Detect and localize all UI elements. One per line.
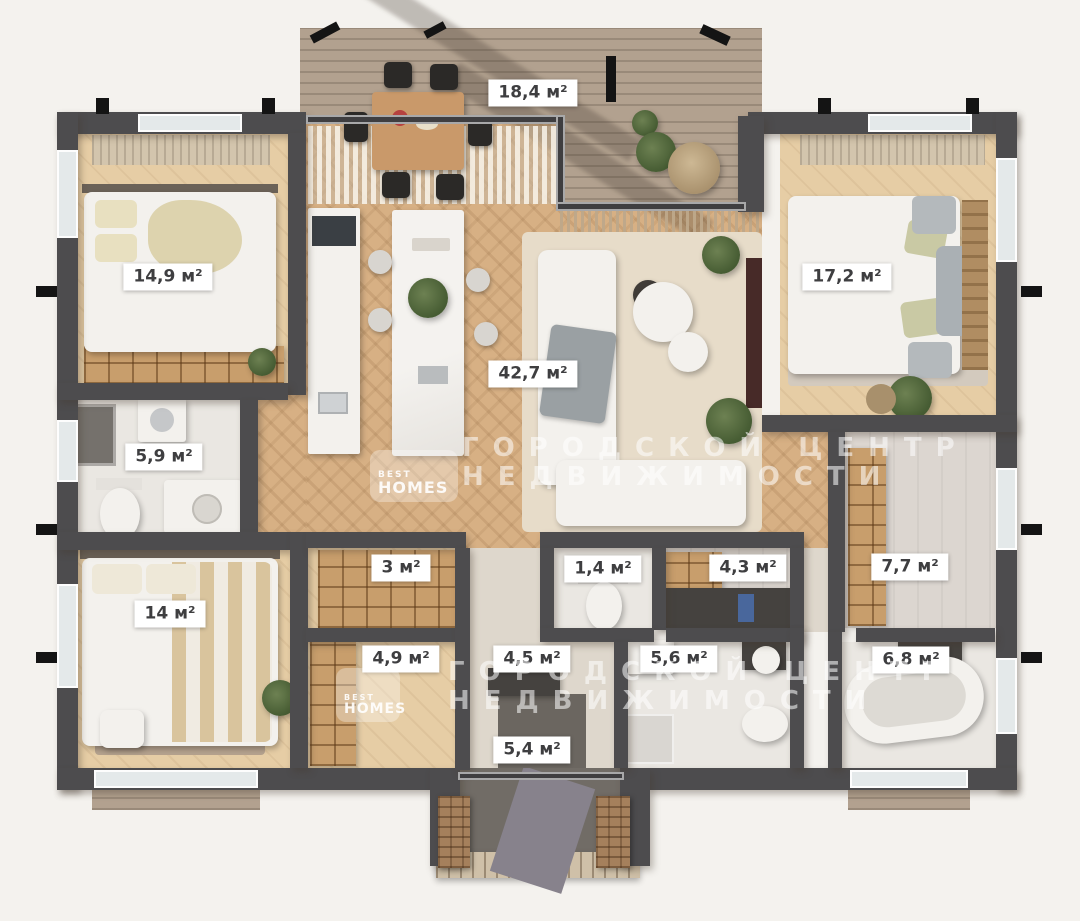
roof-beam-mark xyxy=(96,98,109,114)
area-label-storage: 4,3 м² xyxy=(709,555,786,582)
pouf xyxy=(908,342,952,378)
brand-line2: HOMES xyxy=(344,702,392,716)
area-label-text: 42,7 м² xyxy=(498,364,567,384)
area-label-closet: 3 м² xyxy=(371,555,430,582)
porch-planter xyxy=(438,796,470,868)
sliding-glass-door xyxy=(556,202,746,211)
area-label-text: 4,9 м² xyxy=(372,649,429,669)
roof-beam-mark xyxy=(1021,524,1042,535)
window xyxy=(996,658,1017,734)
toilet xyxy=(586,582,622,630)
area-label-dressing-right: 7,7 м² xyxy=(871,554,948,581)
roof-beam-mark xyxy=(262,98,275,114)
window xyxy=(57,150,78,238)
roof-beam-mark xyxy=(36,286,57,297)
watermark-line1: ГОРОДСКОЙ ЦЕНТР xyxy=(462,434,969,463)
bar-stool xyxy=(368,308,392,332)
media-wall xyxy=(746,258,762,408)
area-label-text: 5,4 м² xyxy=(503,740,560,760)
window xyxy=(57,420,78,482)
storage-blue-item xyxy=(738,594,754,622)
area-label-living: 42,7 м² xyxy=(488,361,577,388)
wall-bedroomTR-bottom xyxy=(762,415,1017,432)
outside-deck-mat xyxy=(92,790,260,810)
window-deck-strip xyxy=(800,135,985,165)
area-label-bathroom-left: 5,9 м² xyxy=(125,444,202,471)
roof-beam-mark xyxy=(818,98,831,114)
outside-deck-mat xyxy=(848,790,970,810)
pergola-post xyxy=(606,56,616,102)
area-label-text: 5,9 м² xyxy=(135,447,192,467)
wood-headboard xyxy=(962,200,988,370)
area-label-text: 18,4 м² xyxy=(498,83,567,103)
watermark-text: ГОРОДСКОЙ ЦЕНТР НЕДВИЖИМОСТИ xyxy=(462,434,969,492)
wall-wc-bottom xyxy=(540,628,654,642)
brand-logo: BEST HOMES xyxy=(336,668,400,722)
sliding-glass-door xyxy=(306,115,560,124)
bar-stool xyxy=(466,268,490,292)
terrace-chair xyxy=(436,174,464,200)
basket xyxy=(866,384,896,414)
roof-beam-mark xyxy=(1021,286,1042,297)
area-label-text: 14,9 м² xyxy=(133,267,202,287)
watermark-line1: ГОРОДСКОЙ ЦЕНТР xyxy=(448,658,955,687)
pillow xyxy=(92,564,142,594)
area-label-text: 3 м² xyxy=(381,558,420,578)
window-deck-strip xyxy=(92,135,270,165)
corridor-bath-floor xyxy=(804,548,828,632)
window xyxy=(868,114,972,132)
area-label-bedroom-top-left: 14,9 м² xyxy=(123,264,212,291)
kitchen-sink xyxy=(318,392,348,414)
coffee-table-small xyxy=(668,332,708,372)
entry-glass-door xyxy=(458,772,624,780)
wall-storage-right xyxy=(790,548,804,630)
window xyxy=(996,468,1017,550)
terrace-wall-chunk xyxy=(738,116,764,212)
window xyxy=(996,158,1017,262)
shower xyxy=(622,714,674,764)
island-sink xyxy=(418,366,448,384)
island-plant xyxy=(408,278,448,318)
area-label-text: 7,7 м² xyxy=(881,557,938,577)
wall-wc-left xyxy=(540,548,554,630)
wall-bedroomBL-right xyxy=(290,532,308,768)
pouf xyxy=(912,196,956,234)
pillow xyxy=(146,564,196,594)
watermark-line2: НЕДВИЖИМОСТИ xyxy=(448,687,955,716)
terrace-chair xyxy=(384,62,412,88)
window xyxy=(57,584,78,688)
roof-beam-mark xyxy=(1021,652,1042,663)
wall-wc-right xyxy=(652,548,666,630)
area-label-text: 17,2 м² xyxy=(812,267,881,287)
wall-central-band-a xyxy=(306,532,466,548)
window xyxy=(850,770,968,788)
washing-machine-door xyxy=(150,408,174,432)
floor-plan: 18,4 м² 14,9 м² 17,2 м² 42,7 м² 5,9 м² 1… xyxy=(0,0,1080,921)
wall-central-band-b xyxy=(540,532,804,548)
armchair xyxy=(100,710,144,748)
washbasin xyxy=(192,494,222,524)
wall-bathL-right xyxy=(240,400,258,538)
area-label-wc: 1,4 м² xyxy=(564,556,641,583)
entry-corridor-floor xyxy=(466,548,540,632)
pillow xyxy=(95,200,137,228)
bar-stool xyxy=(368,250,392,274)
dining-table xyxy=(372,92,464,170)
area-label-bedroom-bottom-left: 14 м² xyxy=(135,601,206,628)
wall-bedroomTL-right xyxy=(288,133,306,395)
pampas-plant xyxy=(668,142,720,194)
roof-beam-mark xyxy=(966,98,979,114)
wall-bedroomTL-bottom xyxy=(57,383,288,400)
watermark-line2: НЕДВИЖИМОСТИ xyxy=(462,463,969,492)
area-label-bedroom-top-right: 17,2 м² xyxy=(802,264,891,291)
brand-logo: BEST HOMES xyxy=(370,450,458,502)
glass-wall xyxy=(556,115,565,210)
window xyxy=(138,114,242,132)
living-plant xyxy=(702,236,740,274)
island-tray xyxy=(412,238,450,251)
watermark-text: ГОРОДСКОЙ ЦЕНТР НЕДВИЖИМОСТИ xyxy=(448,658,955,716)
wall-bathL-bottom xyxy=(57,532,290,550)
bar-stool xyxy=(474,322,498,346)
area-label-text: 1,4 м² xyxy=(574,559,631,579)
window xyxy=(94,770,258,788)
porch-planter xyxy=(596,796,630,868)
wall-bathR-top xyxy=(856,628,995,642)
terrace-chair xyxy=(382,172,410,198)
terrace-chair xyxy=(430,64,458,90)
roof-beam-mark xyxy=(36,524,57,535)
area-label-text: 14 м² xyxy=(145,604,196,624)
area-label-text: 4,3 м² xyxy=(719,558,776,578)
bedroom-plant xyxy=(248,348,276,376)
roof-beam-mark xyxy=(36,652,57,663)
cooktop xyxy=(312,216,356,246)
pillow xyxy=(95,234,137,262)
wall-storage-bottom xyxy=(666,628,804,642)
brand-line2: HOMES xyxy=(378,480,450,496)
corridor-left-floor xyxy=(258,395,306,548)
area-label-terrace: 18,4 м² xyxy=(488,80,577,107)
wall-closet-hall-divider xyxy=(306,628,458,642)
area-label-porch: 5,4 м² xyxy=(493,737,570,764)
storage-counter xyxy=(660,588,792,628)
